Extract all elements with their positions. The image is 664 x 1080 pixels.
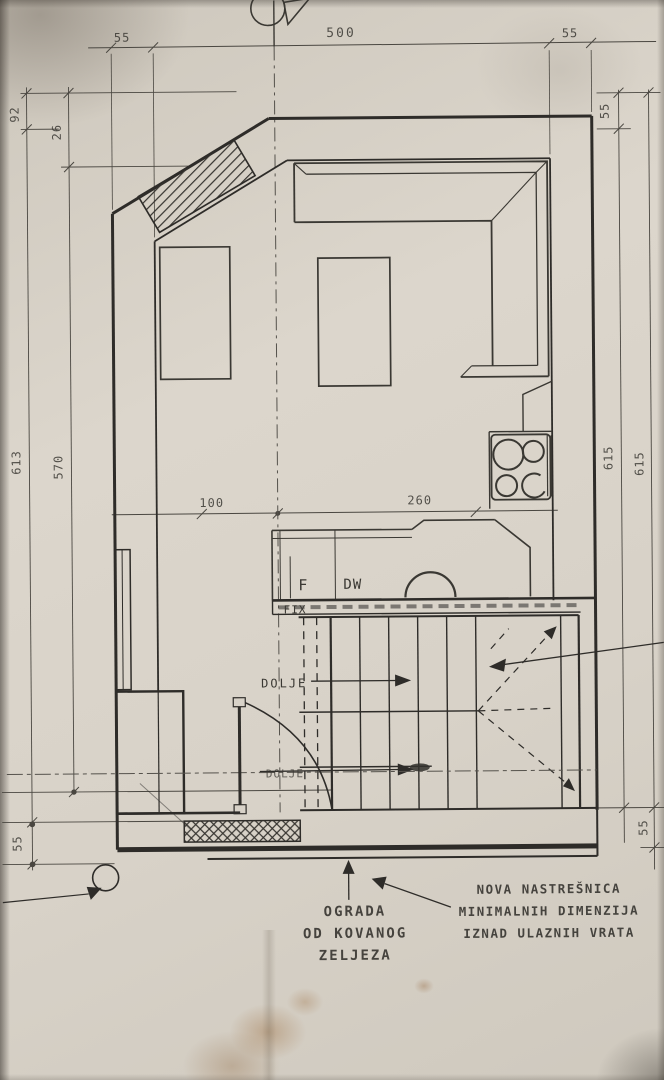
dim-kitchen-left: 100 bbox=[199, 496, 224, 510]
label-stairs-down-upper: DOLJE bbox=[261, 676, 307, 690]
cooktop bbox=[491, 434, 552, 499]
canopy-annotation-line3: IZNAD ULAZNIH VRATA bbox=[463, 925, 635, 941]
angled-window-hatched bbox=[138, 140, 256, 233]
entry-pier bbox=[116, 691, 184, 814]
label-stairs-down-lower: DOLJE bbox=[266, 767, 304, 780]
dim-right-total-inner: 615 bbox=[632, 451, 646, 476]
dim-top-right: 55 bbox=[562, 26, 579, 40]
fence-annotation-line1: OGRADA bbox=[324, 904, 387, 920]
column-post bbox=[3, 865, 119, 903]
kitchen-counter-upper bbox=[489, 381, 553, 508]
walls bbox=[112, 116, 598, 860]
wrought-iron-fence bbox=[184, 820, 300, 842]
dim-right-total-outer: 615 bbox=[601, 445, 615, 470]
fixed-glazing-band bbox=[272, 598, 595, 615]
dim-upper-left-inner: 26 bbox=[50, 124, 64, 141]
canopy-annotation: NOVA NASTREŠNICA MINIMALNIH DIMENZIJA IZ… bbox=[458, 881, 639, 941]
kitchen-counter-lower bbox=[272, 519, 531, 600]
canopy-annotation-line1: NOVA NASTREŠNICA bbox=[476, 881, 621, 897]
floor-plan-photo: 55 500 55 92 26 613 570 55 55 615 615 55… bbox=[0, 0, 664, 1080]
dim-left-inner-total: 570 bbox=[51, 455, 65, 480]
dim-top-left: 55 bbox=[114, 31, 131, 45]
leader-arrow-left bbox=[489, 642, 664, 671]
dashed-direction-fan bbox=[478, 628, 570, 787]
sink bbox=[405, 572, 455, 597]
canopy-annotation-line2: MINIMALNIH DIMENZIJA bbox=[459, 903, 640, 919]
label-fix-window: FIX bbox=[283, 603, 306, 616]
annotation-leaders bbox=[343, 859, 451, 908]
dimension-labels: 55 500 55 92 26 613 570 55 55 615 615 55… bbox=[4, 24, 650, 852]
dim-kitchen-right: 260 bbox=[407, 493, 432, 507]
fence-annotation-line3: ZELJEZA bbox=[319, 948, 392, 965]
paper-crease bbox=[262, 930, 276, 1080]
center-dash-line bbox=[274, 46, 280, 812]
dim-top-span: 500 bbox=[326, 26, 356, 41]
fence-annotation: OGRADA OD KOVANOG ZELJEZA bbox=[303, 903, 408, 964]
coffee-table bbox=[318, 258, 391, 387]
dim-bottom-right: 55 bbox=[636, 819, 650, 836]
door-swing-arc bbox=[245, 702, 332, 811]
dim-right-wall-top: 55 bbox=[598, 103, 612, 120]
entrance-door bbox=[116, 697, 332, 815]
fence-annotation-line2: OD KOVANOG bbox=[303, 925, 407, 942]
north-orientation-symbol bbox=[251, 0, 310, 26]
label-dishwasher: DW bbox=[343, 577, 362, 593]
floor-plan-drawing: 55 500 55 92 26 613 570 55 55 615 615 55… bbox=[0, 0, 664, 1080]
dim-bottom-left: 55 bbox=[10, 835, 24, 852]
dim-left-total: 613 bbox=[9, 450, 23, 475]
label-fridge: F bbox=[298, 576, 308, 594]
corner-sofa bbox=[294, 161, 549, 378]
stairs-down-arrow-upper bbox=[311, 674, 411, 687]
dim-upper-left-outer: 92 bbox=[8, 106, 22, 123]
wardrobe bbox=[160, 247, 231, 380]
staircase bbox=[6, 614, 664, 812]
